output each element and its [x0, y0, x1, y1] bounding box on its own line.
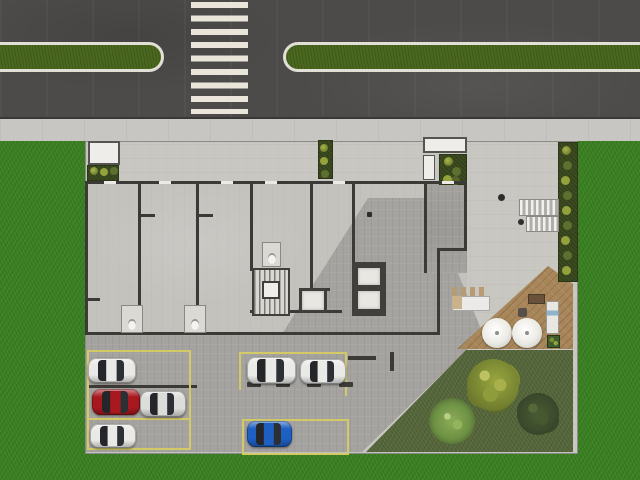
wall [348, 356, 376, 360]
road-median-right [283, 42, 640, 72]
balcony-top-left [88, 141, 120, 165]
wall [250, 181, 253, 271]
car-glass [98, 360, 124, 381]
column [518, 219, 524, 225]
parking-wall [87, 385, 197, 388]
wall [464, 183, 467, 251]
car-silver [140, 391, 186, 417]
wall [437, 248, 440, 335]
site-plan-render [0, 0, 640, 480]
wall [437, 248, 465, 251]
car-glass [256, 423, 280, 444]
car-white [88, 358, 136, 383]
car-white [90, 424, 136, 448]
car-glass [150, 393, 175, 414]
bathroom-niche [121, 305, 143, 333]
hedge-strip [558, 142, 578, 282]
parking-line [87, 448, 191, 450]
umbrella-icon [512, 318, 542, 348]
wall [85, 298, 100, 301]
plaza-stairs [526, 216, 559, 232]
toilet-icon [128, 319, 136, 330]
door-threshold [159, 181, 171, 184]
parking-line [87, 418, 191, 420]
crosswalk [191, 2, 248, 114]
parking-line [239, 352, 241, 390]
wall [85, 181, 88, 335]
tree-olive-icon [467, 359, 519, 411]
bathroom-niche [262, 242, 281, 267]
bar-stool-row [452, 287, 488, 296]
hedge-bush-icon [562, 146, 571, 155]
column [367, 212, 372, 217]
elevator [356, 266, 382, 287]
parking-line [189, 350, 191, 450]
car-white [247, 357, 296, 384]
stair-landing [262, 281, 280, 299]
deck-chair [518, 308, 527, 317]
elevator [356, 289, 382, 311]
car-red [92, 389, 140, 415]
toilet-icon [268, 253, 276, 264]
car-blue [247, 421, 292, 447]
deck-planter-box [547, 335, 560, 348]
planter-bush-icon [320, 144, 328, 152]
wall [138, 214, 155, 217]
deck-bench [528, 294, 545, 304]
door-threshold [221, 181, 233, 184]
entry-niche [423, 155, 435, 180]
car-glass [100, 426, 125, 446]
parking-line [239, 352, 347, 354]
door-threshold [333, 181, 345, 184]
tree-light-icon [429, 398, 475, 444]
toilet-icon [191, 319, 199, 330]
wall [352, 181, 355, 264]
car-white [300, 359, 346, 384]
door-threshold [442, 181, 454, 184]
bar-counter-end [452, 296, 462, 309]
car-glass [102, 391, 128, 412]
door-threshold [265, 181, 277, 184]
bathroom-niche [184, 305, 206, 333]
parking-line [87, 350, 191, 352]
car-glass [310, 361, 335, 382]
driveway-entry [424, 183, 467, 273]
road-median-left [0, 42, 164, 72]
car-glass [257, 359, 283, 381]
door-threshold [104, 181, 116, 184]
wall [310, 181, 313, 291]
wall [424, 181, 427, 273]
planter-bush-icon [90, 167, 98, 175]
elevator [299, 288, 327, 313]
balcony-top-right [423, 137, 467, 153]
planter-bush-icon [444, 157, 453, 166]
plaza-stairs [519, 199, 559, 216]
wall [390, 352, 394, 371]
tree-dark-icon [517, 393, 559, 435]
umbrella-icon [482, 318, 512, 348]
wall [196, 214, 213, 217]
column [498, 194, 505, 201]
sun-lounger [546, 301, 559, 334]
